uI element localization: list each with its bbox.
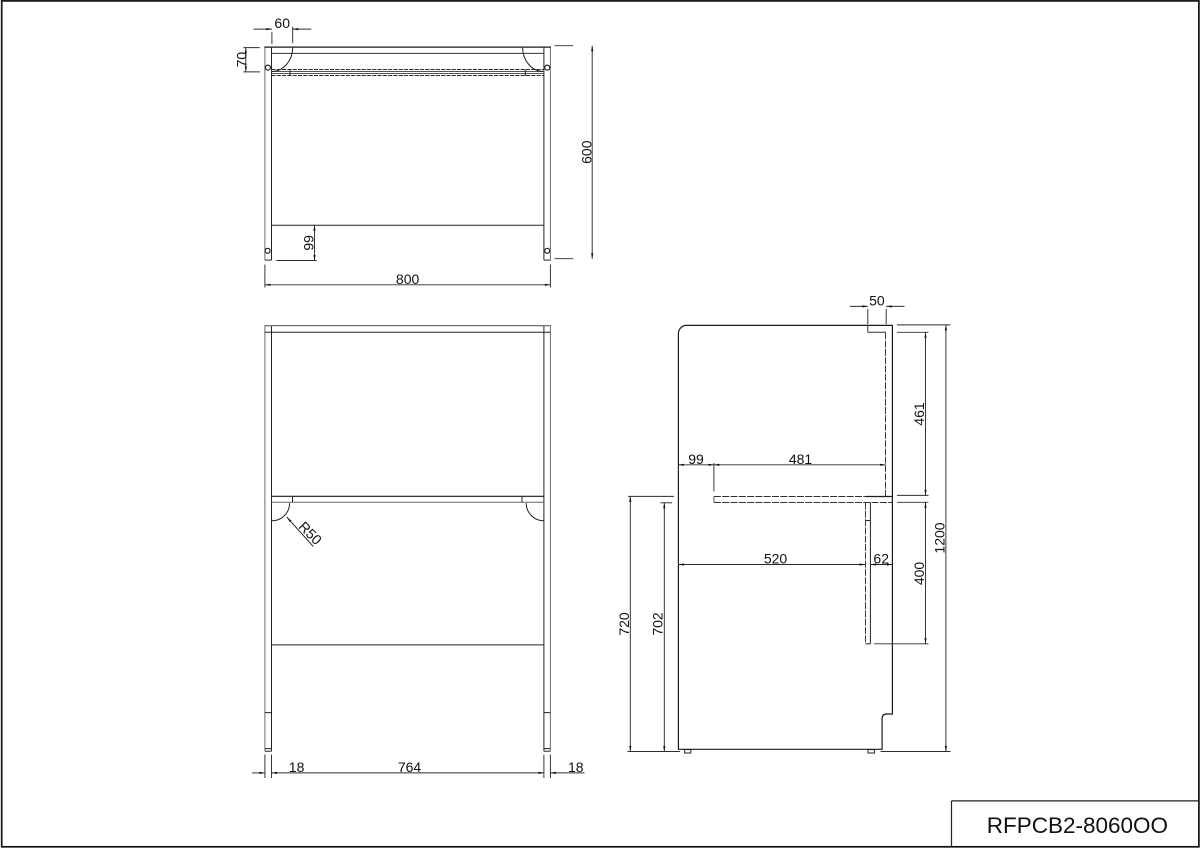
svg-text:800: 800 bbox=[396, 271, 420, 287]
svg-text:50: 50 bbox=[869, 292, 885, 308]
svg-text:70: 70 bbox=[234, 52, 250, 68]
svg-text:62: 62 bbox=[873, 550, 889, 566]
svg-text:600: 600 bbox=[579, 140, 595, 164]
svg-text:764: 764 bbox=[398, 759, 422, 775]
svg-text:18: 18 bbox=[289, 759, 305, 775]
svg-text:18: 18 bbox=[568, 759, 584, 775]
svg-text:520: 520 bbox=[764, 550, 788, 566]
svg-text:99: 99 bbox=[301, 235, 317, 251]
svg-text:60: 60 bbox=[274, 15, 290, 31]
svg-text:99: 99 bbox=[688, 451, 704, 467]
svg-text:RFPCB2-8060OO: RFPCB2-8060OO bbox=[987, 813, 1168, 838]
svg-text:481: 481 bbox=[789, 451, 813, 467]
svg-text:461: 461 bbox=[911, 402, 927, 426]
svg-text:1200: 1200 bbox=[932, 522, 948, 553]
svg-text:720: 720 bbox=[616, 612, 632, 636]
svg-text:400: 400 bbox=[911, 562, 927, 586]
svg-text:702: 702 bbox=[650, 612, 666, 636]
svg-text:R50: R50 bbox=[296, 518, 325, 548]
